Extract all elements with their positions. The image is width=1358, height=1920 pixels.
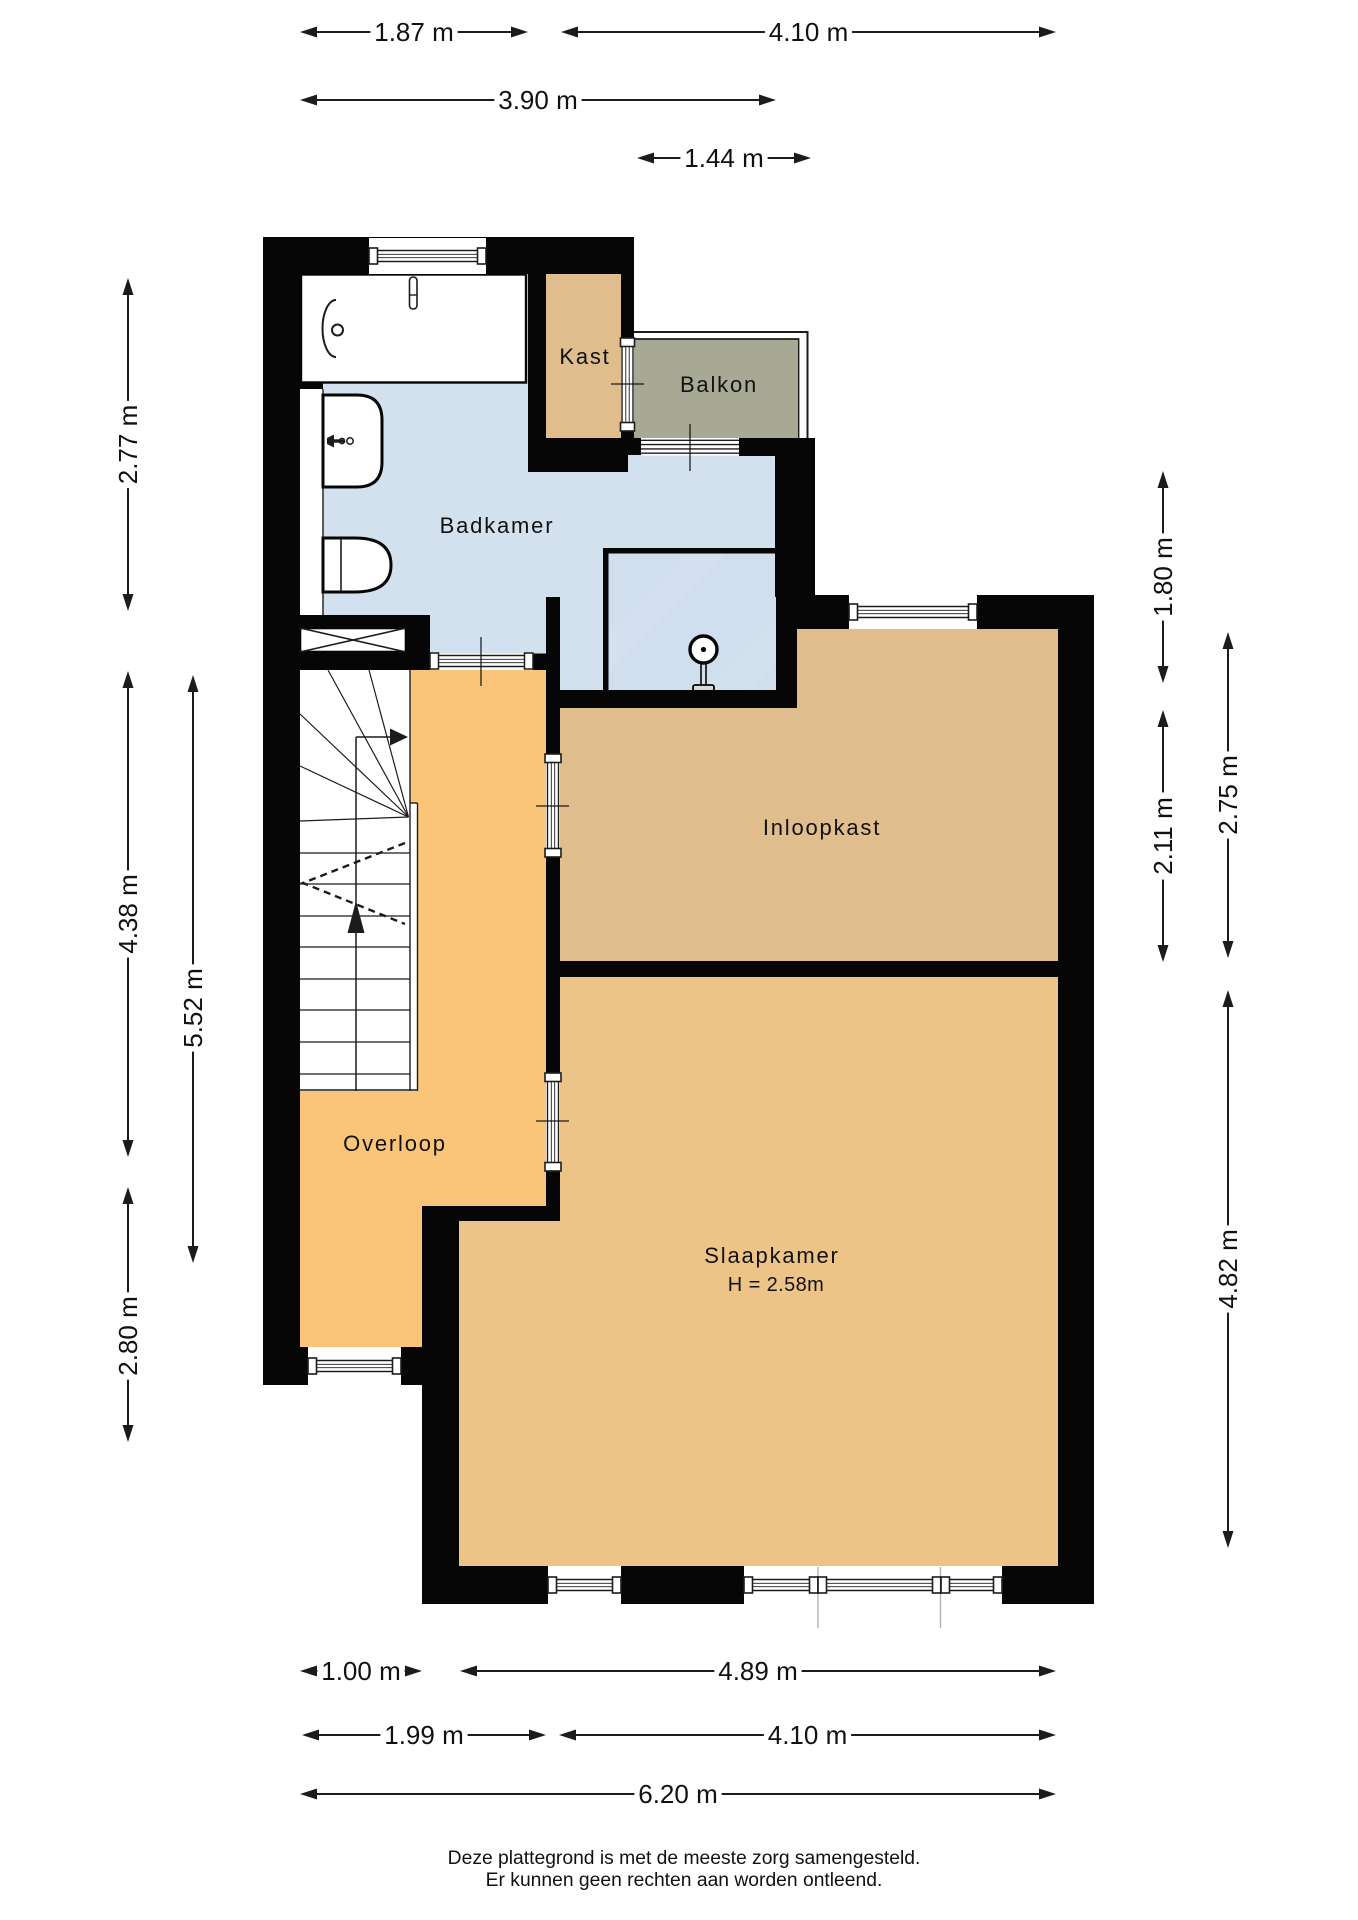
svg-text:1.00 m: 1.00 m — [321, 1656, 401, 1686]
svg-text:4.10 m: 4.10 m — [768, 1720, 848, 1750]
svg-text:4.89 m: 4.89 m — [718, 1656, 798, 1686]
svg-text:2.75 m: 2.75 m — [1213, 755, 1243, 835]
svg-text:Deze plattegrond is met de mee: Deze plattegrond is met de meeste zorg s… — [448, 1848, 921, 1869]
svg-text:Slaapkamer: Slaapkamer — [704, 1243, 839, 1268]
svg-text:Er kunnen geen rechten aan wor: Er kunnen geen rechten aan worden ontlee… — [486, 1870, 883, 1891]
svg-text:Overloop: Overloop — [343, 1131, 447, 1156]
svg-text:Kast: Kast — [559, 344, 610, 369]
svg-text:1.44 m: 1.44 m — [684, 143, 764, 173]
svg-text:Badkamer: Badkamer — [440, 513, 555, 538]
svg-text:1.80 m: 1.80 m — [1148, 537, 1178, 617]
svg-text:1.99 m: 1.99 m — [384, 1720, 464, 1750]
svg-text:4.10 m: 4.10 m — [769, 17, 849, 47]
svg-text:Balkon: Balkon — [680, 372, 758, 397]
svg-text:4.38 m: 4.38 m — [113, 874, 143, 954]
svg-text:Inloopkast: Inloopkast — [763, 815, 881, 840]
svg-text:2.77 m: 2.77 m — [113, 405, 143, 485]
svg-text:6.20 m: 6.20 m — [638, 1779, 718, 1809]
svg-text:1.87 m: 1.87 m — [374, 17, 454, 47]
svg-text:4.82 m: 4.82 m — [1213, 1229, 1243, 1309]
svg-text:2.80 m: 2.80 m — [113, 1296, 143, 1376]
svg-text:2.11 m: 2.11 m — [1148, 797, 1178, 875]
svg-text:H = 2.58m: H = 2.58m — [728, 1274, 824, 1296]
svg-text:5.52 m: 5.52 m — [178, 968, 208, 1048]
svg-text:3.90 m: 3.90 m — [498, 85, 578, 115]
